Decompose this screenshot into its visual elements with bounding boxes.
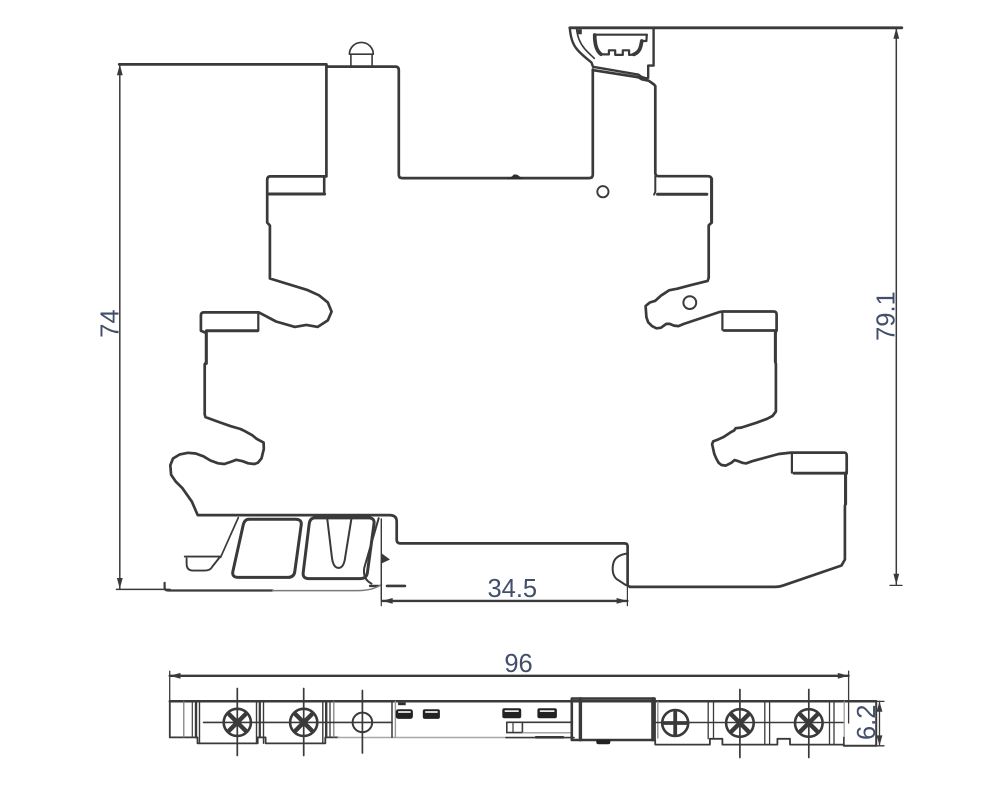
svg-text:74: 74 bbox=[97, 309, 125, 337]
svg-text:96: 96 bbox=[504, 650, 532, 678]
svg-text:34.5: 34.5 bbox=[487, 575, 537, 603]
svg-text:79.1: 79.1 bbox=[873, 291, 901, 341]
svg-text:6.2: 6.2 bbox=[853, 705, 881, 740]
